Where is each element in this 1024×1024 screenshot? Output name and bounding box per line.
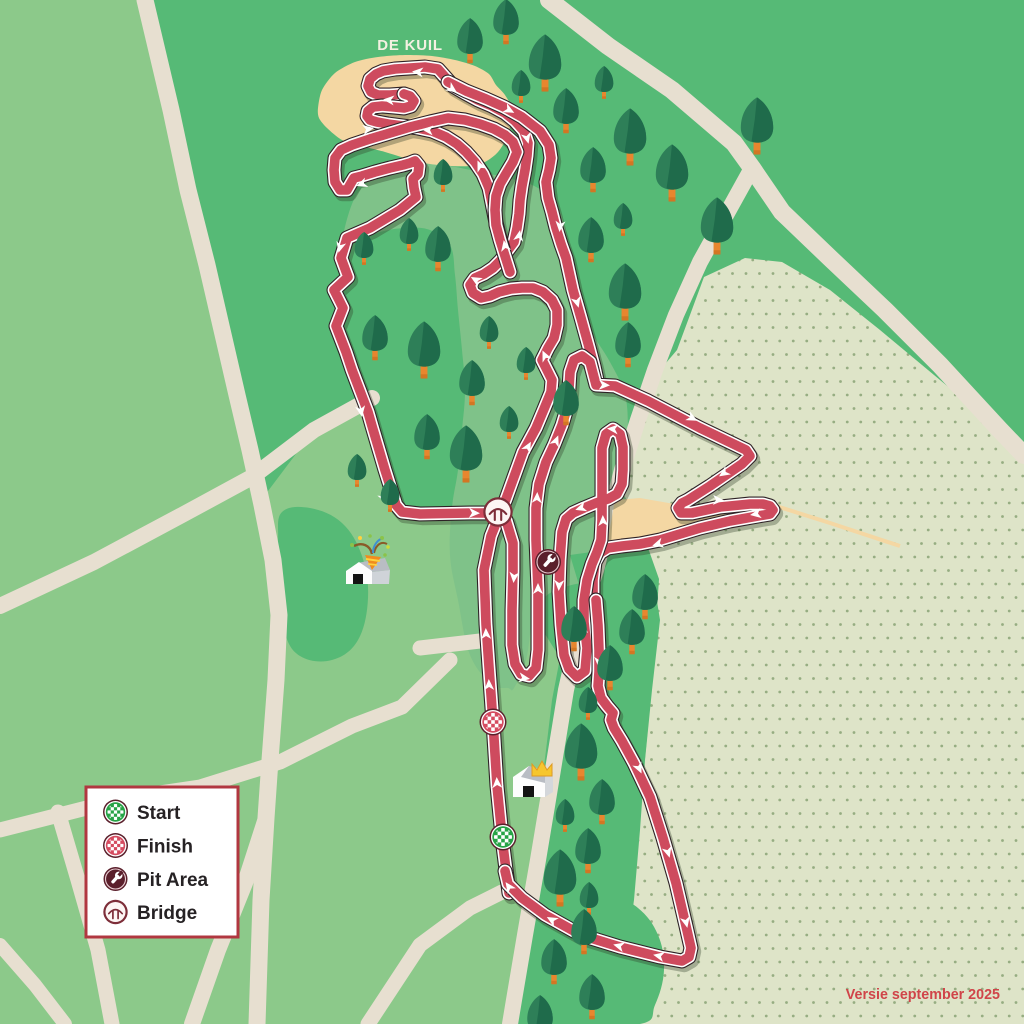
svg-text:Bridge: Bridge [137,903,197,924]
svg-text:DE KUIL: DE KUIL [377,37,443,54]
svg-text:Finish: Finish [137,837,193,858]
svg-text:Versie september 2025: Versie september 2025 [846,987,1000,1003]
svg-text:Start: Start [137,803,181,824]
svg-text:Pit Area: Pit Area [137,870,209,891]
